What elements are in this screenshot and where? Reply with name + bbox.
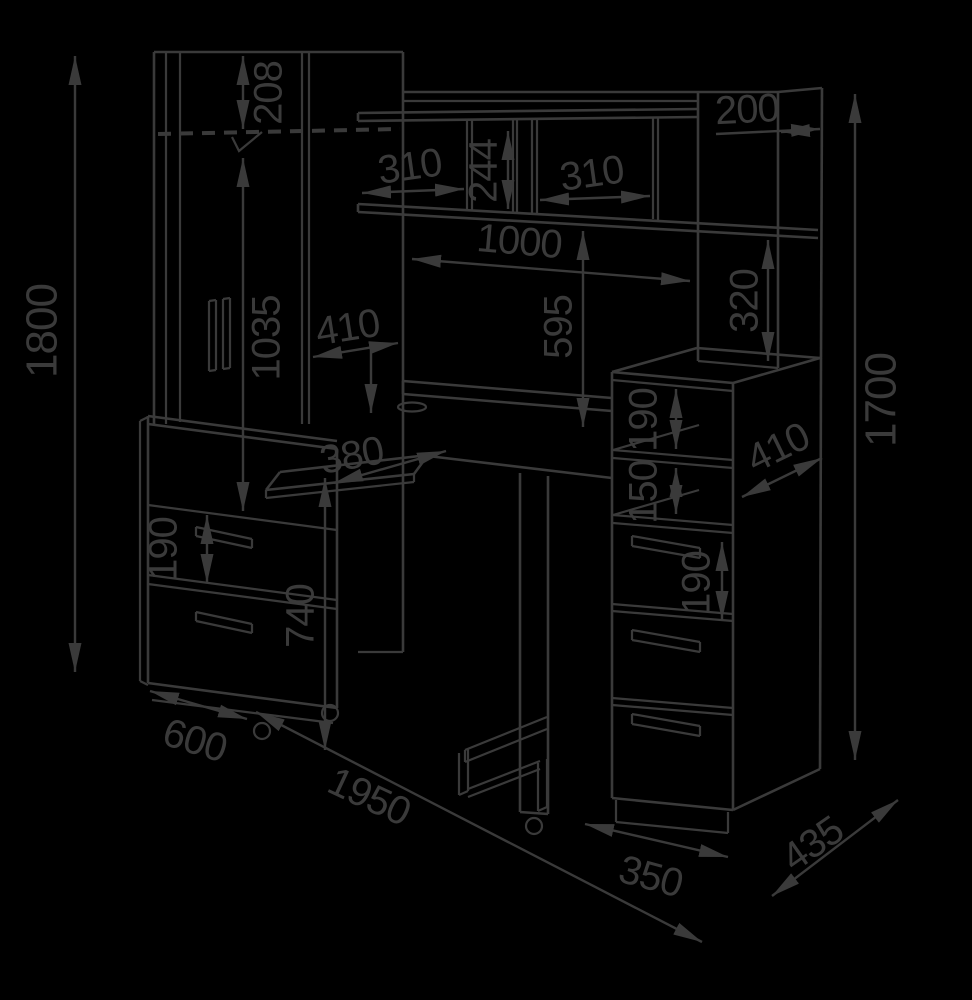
cpu-stand [459,717,547,811]
dim-mid-niche-height: 244 [462,138,506,202]
wardrobe-door-handle [209,298,230,371]
dim-mobile-drawer: 190 [142,517,186,581]
dim-shelf-niche-b: 150 [622,460,666,524]
dim-hutch-span: 1000 [475,216,563,267]
dim-right-height: 1700 [857,353,906,447]
dim-wardrobe-depth: 600 [158,710,232,771]
mobile-drawer-handle-1 [196,527,252,548]
dim-top-cabinet: 200 [714,86,780,133]
dimension-annotations: 1800 208 1035 310 244 310 200 1000 320 5… [18,56,906,942]
hanging-rail [158,129,400,151]
pedestal-caster-left [254,723,270,739]
technical-drawing-page: 1800 208 1035 310 244 310 200 1000 320 5… [0,0,972,1000]
dim-hutch-above-desk: 595 [537,295,581,359]
furniture-dimension-diagram: 1800 208 1035 310 244 310 200 1000 320 5… [0,0,972,1000]
dim-shelf-niche-a: 190 [622,388,666,452]
dim-tray: 380 [316,428,386,482]
dim-pedestal-depth: 410 [740,414,817,481]
dim-desk-height: 740 [279,584,323,648]
dim-hanging-height: 1035 [245,296,289,381]
pedestal-drawer-handle-3 [632,714,700,736]
dim-rail-offset: 208 [247,61,291,125]
dim-wardrobe-height: 1800 [18,284,67,378]
dim-pedestal-drawer: 190 [675,551,719,615]
desk-caster [526,818,542,834]
mobile-drawer-handle-2 [196,612,252,633]
dim-pedestal-width: 350 [614,847,687,906]
dim-shelf-right-width: 310 [557,147,626,199]
dim-cabinet-niche: 320 [723,269,767,333]
dim-pedestal-diagonal: 435 [774,808,851,881]
pedestal-drawer-handle-2 [632,630,700,652]
dim-shelf-left-width: 310 [375,140,444,192]
